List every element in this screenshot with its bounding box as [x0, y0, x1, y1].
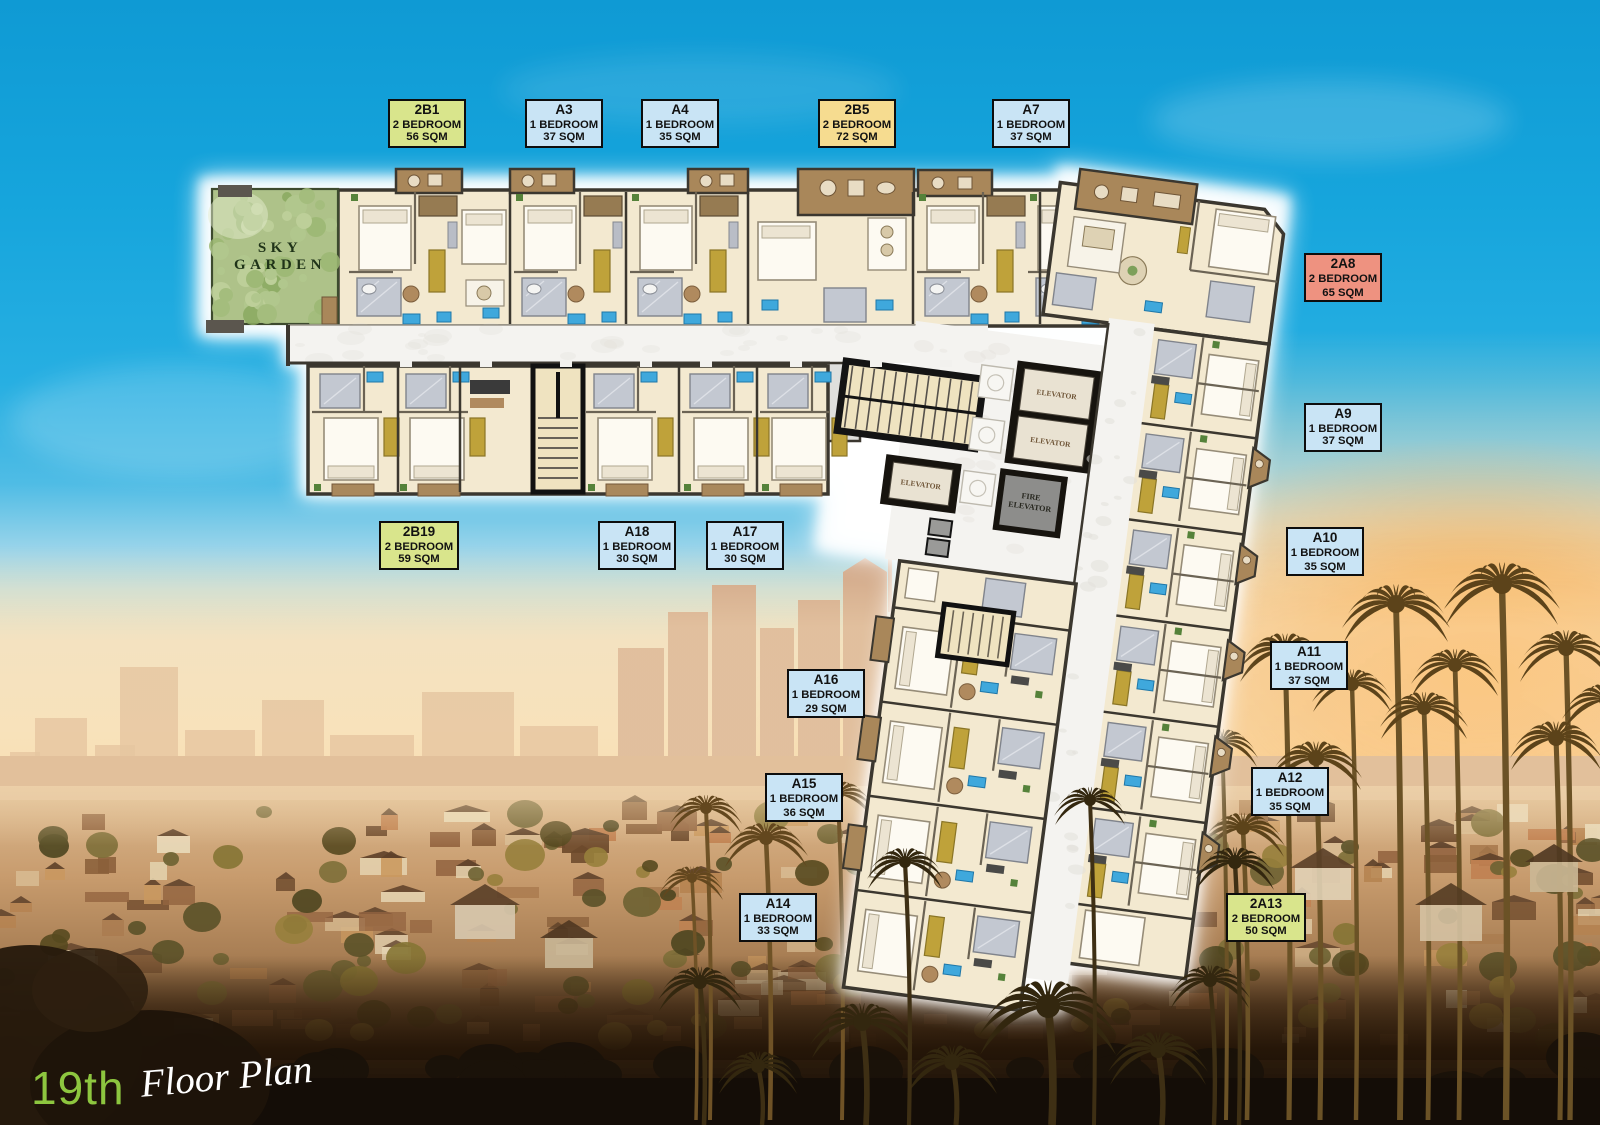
svg-text:72 SQM: 72 SQM — [836, 131, 877, 143]
svg-text:A16: A16 — [814, 672, 839, 687]
svg-text:SKY: SKY — [258, 240, 302, 256]
svg-text:30 SQM: 30 SQM — [616, 553, 657, 565]
svg-text:50 SQM: 50 SQM — [1245, 925, 1286, 937]
svg-text:A15: A15 — [792, 776, 817, 791]
svg-text:1 BEDROOM: 1 BEDROOM — [997, 119, 1065, 131]
svg-text:A3: A3 — [555, 102, 573, 117]
svg-text:A18: A18 — [625, 524, 650, 539]
svg-text:2 BEDROOM: 2 BEDROOM — [393, 119, 461, 131]
svg-text:1 BEDROOM: 1 BEDROOM — [744, 913, 812, 925]
svg-text:37 SQM: 37 SQM — [543, 131, 584, 143]
svg-text:A11: A11 — [1297, 644, 1322, 659]
svg-text:1 BEDROOM: 1 BEDROOM — [603, 541, 671, 553]
svg-text:37 SQM: 37 SQM — [1322, 435, 1363, 447]
svg-text:19th: 19th — [31, 1062, 125, 1114]
svg-text:1 BEDROOM: 1 BEDROOM — [1291, 547, 1359, 559]
svg-text:2B19: 2B19 — [403, 524, 435, 539]
svg-text:33 SQM: 33 SQM — [757, 925, 798, 937]
svg-text:A9: A9 — [1334, 406, 1351, 421]
svg-text:65 SQM: 65 SQM — [1322, 287, 1363, 299]
svg-text:1 BEDROOM: 1 BEDROOM — [530, 119, 598, 131]
svg-text:A10: A10 — [1313, 530, 1338, 545]
svg-text:2A13: 2A13 — [1250, 896, 1283, 911]
svg-text:2 BEDROOM: 2 BEDROOM — [385, 541, 453, 553]
svg-text:A14: A14 — [766, 896, 791, 911]
svg-text:1 BEDROOM: 1 BEDROOM — [646, 119, 714, 131]
svg-text:1 BEDROOM: 1 BEDROOM — [1275, 661, 1343, 673]
svg-text:35 SQM: 35 SQM — [1304, 561, 1345, 573]
svg-text:36 SQM: 36 SQM — [783, 807, 824, 819]
svg-text:1 BEDROOM: 1 BEDROOM — [1309, 423, 1377, 435]
svg-text:1 BEDROOM: 1 BEDROOM — [1256, 787, 1324, 799]
svg-text:2 BEDROOM: 2 BEDROOM — [823, 119, 891, 131]
svg-text:2B1: 2B1 — [415, 102, 440, 117]
svg-text:2 BEDROOM: 2 BEDROOM — [1232, 913, 1300, 925]
svg-text:A7: A7 — [1022, 102, 1039, 117]
svg-text:1 BEDROOM: 1 BEDROOM — [711, 541, 779, 553]
svg-text:30 SQM: 30 SQM — [724, 553, 765, 565]
svg-text:1 BEDROOM: 1 BEDROOM — [770, 793, 838, 805]
svg-text:GARDEN: GARDEN — [234, 257, 326, 273]
svg-text:A4: A4 — [671, 102, 689, 117]
svg-text:2A8: 2A8 — [1331, 256, 1356, 271]
svg-text:37 SQM: 37 SQM — [1288, 675, 1329, 687]
svg-text:A17: A17 — [733, 524, 758, 539]
svg-text:29 SQM: 29 SQM — [805, 703, 846, 715]
svg-text:35 SQM: 35 SQM — [659, 131, 700, 143]
svg-text:35 SQM: 35 SQM — [1269, 801, 1310, 813]
svg-text:56 SQM: 56 SQM — [406, 131, 447, 143]
svg-text:2B5: 2B5 — [845, 102, 870, 117]
svg-text:37 SQM: 37 SQM — [1010, 131, 1051, 143]
svg-text:2 BEDROOM: 2 BEDROOM — [1309, 273, 1377, 285]
svg-text:1 BEDROOM: 1 BEDROOM — [792, 689, 860, 701]
svg-text:A12: A12 — [1278, 770, 1303, 785]
svg-text:59 SQM: 59 SQM — [398, 553, 439, 565]
